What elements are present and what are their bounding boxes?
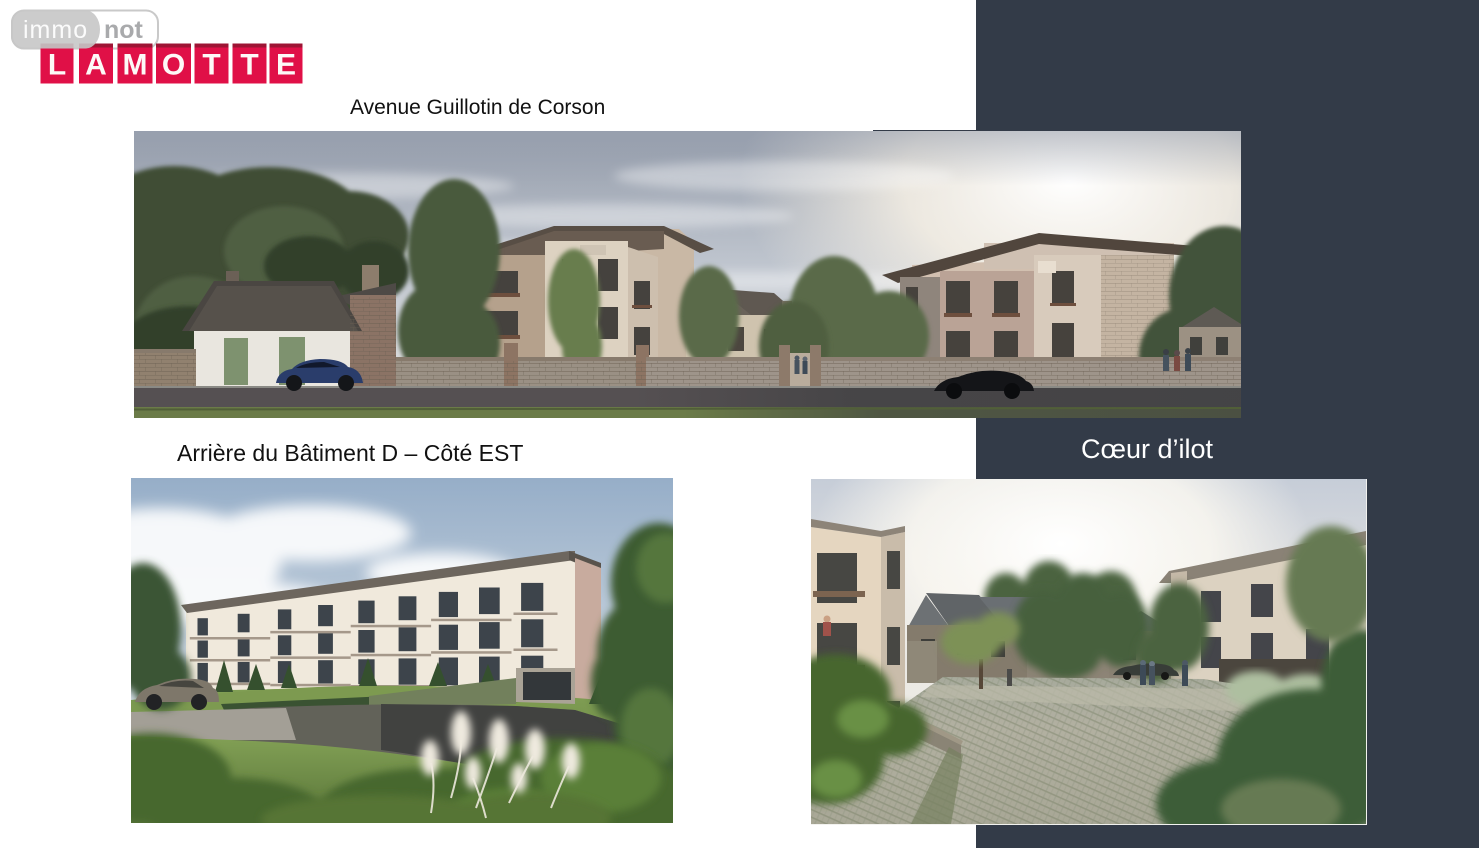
- svg-text:immo: immo: [23, 16, 88, 44]
- svg-text:E: E: [276, 49, 296, 82]
- svg-text:L: L: [48, 49, 66, 82]
- svg-text:not: not: [104, 16, 144, 44]
- svg-text:T: T: [240, 49, 258, 82]
- svg-text:A: A: [85, 49, 107, 82]
- svg-text:T: T: [202, 49, 220, 82]
- svg-text:M: M: [123, 49, 148, 82]
- svg-text:O: O: [162, 49, 185, 82]
